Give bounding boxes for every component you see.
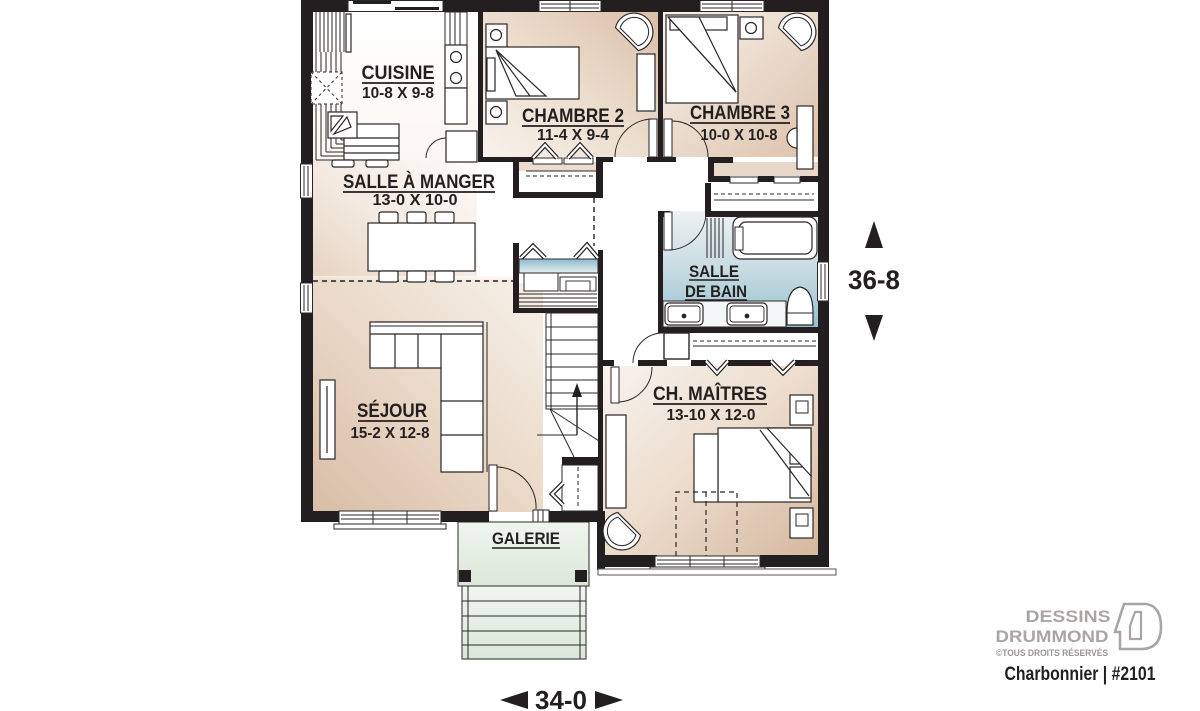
svg-text:13-10 X 12-0: 13-10 X 12-0 [667, 407, 756, 424]
svg-text:SALLE À MANGER: SALLE À MANGER [343, 171, 495, 193]
svg-text:©TOUS DROITS RÉSERVÉS: ©TOUS DROITS RÉSERVÉS [996, 648, 1108, 658]
svg-text:10-0 X 10-8: 10-0 X 10-8 [701, 127, 778, 144]
svg-text:13-0 X 10-0: 13-0 X 10-0 [373, 192, 458, 209]
svg-text:11-4 X 9-4: 11-4 X 9-4 [537, 127, 609, 144]
svg-text:CUISINE: CUISINE [362, 63, 435, 84]
svg-text:GALERIE: GALERIE [492, 529, 560, 548]
svg-text:DRUMMOND: DRUMMOND [996, 627, 1109, 646]
svg-text:DESSINS: DESSINS [1026, 607, 1111, 626]
svg-text:CHAMBRE 2: CHAMBRE 2 [522, 106, 624, 127]
svg-text:CH. MAÎTRES: CH. MAÎTRES [653, 383, 767, 405]
svg-text:10-8 X 9-8: 10-8 X 9-8 [362, 85, 434, 102]
svg-text:34-0: 34-0 [535, 685, 587, 711]
svg-text:DE BAIN: DE BAIN [685, 282, 747, 301]
svg-text:SÉJOUR: SÉJOUR [357, 400, 427, 422]
svg-text:SALLE: SALLE [689, 262, 739, 281]
svg-text:36-8: 36-8 [848, 265, 900, 295]
svg-text:CHAMBRE 3: CHAMBRE 3 [690, 103, 790, 124]
svg-text:Charbonnier | #2101: Charbonnier | #2101 [1005, 664, 1156, 685]
svg-text:15-2 X 12-8: 15-2 X 12-8 [351, 425, 430, 442]
